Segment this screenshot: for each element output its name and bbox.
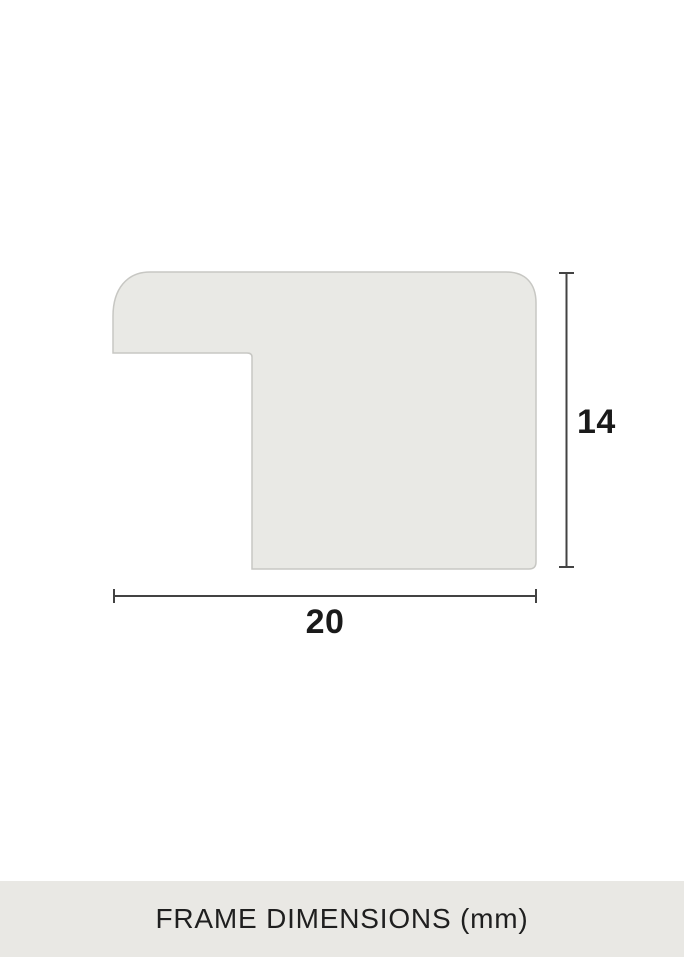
width-dimension-label: 20 — [306, 603, 345, 641]
width-dimension-line — [114, 589, 536, 603]
frame-profile-diagram: 14 20 — [0, 0, 684, 881]
frame-dimensions-page: 14 20 FRAME DIMENSIONS (mm) — [0, 0, 684, 957]
height-dimension-label: 14 — [577, 403, 616, 441]
caption-text: FRAME DIMENSIONS (mm) — [155, 903, 528, 935]
height-dimension-line — [559, 273, 574, 567]
caption-bar: FRAME DIMENSIONS (mm) — [0, 881, 684, 957]
frame-profile-shape — [113, 272, 536, 569]
